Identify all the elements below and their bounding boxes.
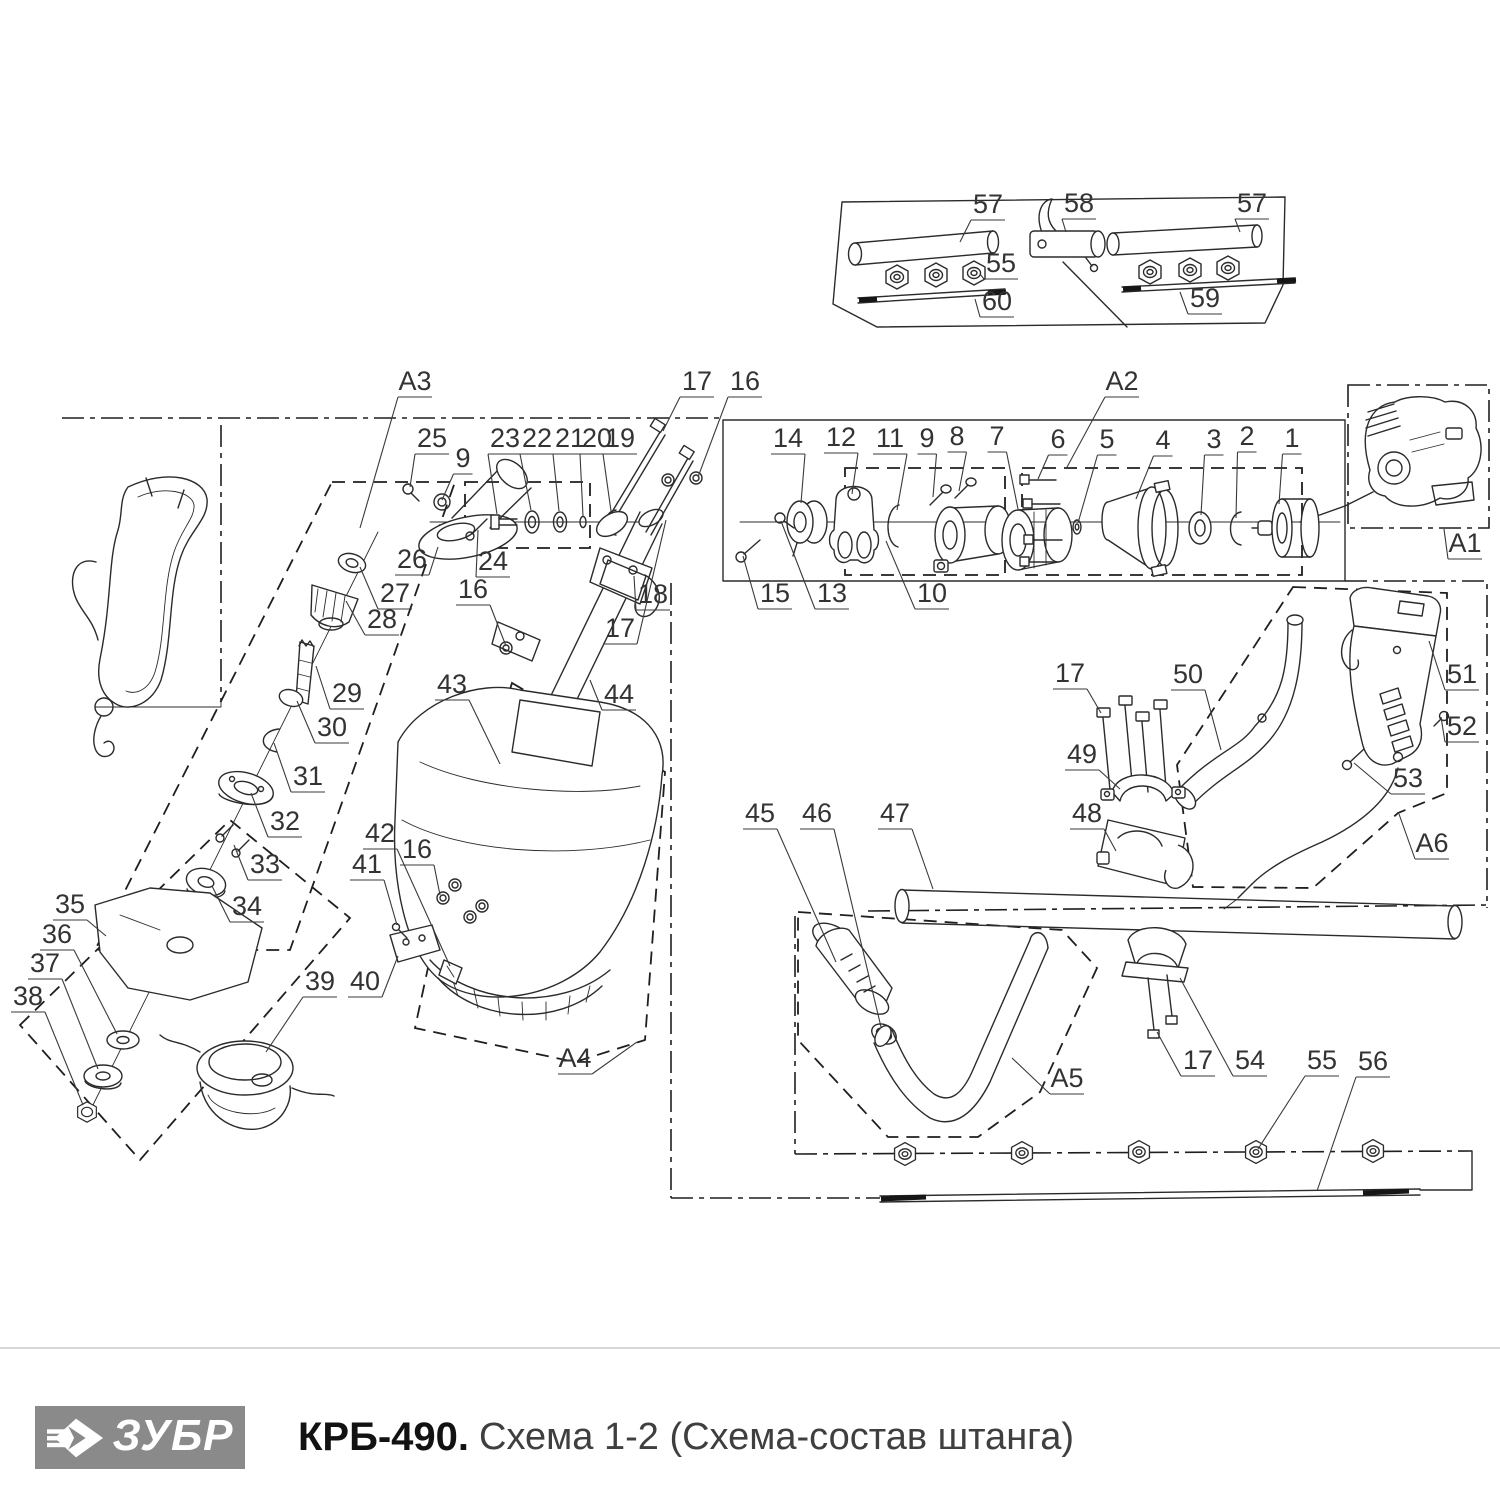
collar-14 (787, 501, 827, 556)
throttle-cable (1252, 768, 1398, 884)
svg-text:55: 55 (1307, 1045, 1337, 1075)
svg-text:38: 38 (13, 981, 43, 1011)
part-label-58: 58 (1062, 188, 1096, 232)
svg-text:30: 30 (317, 712, 347, 742)
flange-cup-32 (215, 766, 277, 810)
svg-text:26: 26 (397, 544, 427, 574)
svg-text:57: 57 (1237, 188, 1267, 218)
svg-text:54: 54 (1235, 1045, 1265, 1075)
svg-text:25: 25 (417, 423, 447, 453)
svg-text:1: 1 (1284, 423, 1299, 453)
svg-text:35: 35 (55, 889, 85, 919)
svg-text:17: 17 (605, 613, 635, 643)
clamp-12 (830, 487, 879, 563)
svg-text:57: 57 (973, 189, 1003, 219)
part-label-22: 22 (520, 423, 554, 510)
svg-text:23: 23 (490, 423, 520, 453)
labels-layer: 575857556059A325923222120192624272816293… (11, 188, 1482, 1191)
lower-bracket-48 (1097, 820, 1193, 888)
lower-clamp-54 (1122, 928, 1188, 1038)
drawing-title: КРБ-490. Схема 1-2 (Схема-состав штанга) (298, 1406, 1074, 1469)
tube-57-left (849, 231, 999, 265)
svg-text:16: 16 (402, 834, 432, 864)
svg-text:29: 29 (332, 678, 362, 708)
clutch-row (736, 475, 1373, 576)
brand-arrow-icon (47, 1416, 105, 1460)
part-label-31: 31 (274, 743, 325, 792)
svg-text:8: 8 (949, 421, 964, 451)
part-label-7: 7 (988, 421, 1019, 509)
guard-43 (395, 687, 664, 1020)
v-handlebar (872, 933, 1048, 1122)
part-label-8: 8 (948, 421, 967, 491)
screw-53 (1343, 749, 1365, 770)
part-label-12: 12 (824, 422, 858, 494)
svg-text:2: 2 (1239, 421, 1254, 451)
svg-text:31: 31 (293, 761, 323, 791)
screw-15 (736, 540, 760, 562)
circlip-31 (263, 729, 279, 752)
svg-text:47: 47 (880, 798, 910, 828)
cup-washer-37 (84, 1065, 122, 1089)
svg-text:50: 50 (1173, 659, 1203, 689)
svg-text:44: 44 (604, 679, 634, 709)
svg-text:A6: A6 (1415, 828, 1448, 858)
part-label-29: 29 (316, 666, 364, 709)
svg-text:36: 36 (42, 919, 72, 949)
part-label-51: 51 (1429, 641, 1479, 690)
part-label-6: 6 (1038, 424, 1068, 479)
part-label-41: 41 (350, 849, 397, 925)
part-label-3: 3 (1201, 424, 1224, 515)
svg-text:46: 46 (802, 798, 832, 828)
part-label-A5: A5 (1012, 1058, 1084, 1094)
svg-text:41: 41 (352, 849, 382, 879)
trigger-handle-a6 (1170, 587, 1448, 909)
svg-text:55: 55 (986, 248, 1016, 278)
part-label-40: 40 (348, 956, 398, 997)
part-label-59: 59 (1180, 283, 1222, 314)
svg-text:18: 18 (638, 579, 668, 609)
page: 575857556059A325923222120192624272816293… (0, 0, 1500, 1500)
svg-text:49: 49 (1067, 739, 1097, 769)
circlip-11 (888, 505, 899, 547)
part-label-1: 1 (1279, 423, 1302, 504)
svg-text:21: 21 (555, 423, 585, 453)
svg-text:43: 43 (437, 669, 467, 699)
part-label-50: 50 (1171, 659, 1221, 750)
part-label-11: 11 (873, 423, 907, 510)
svg-text:17: 17 (1055, 658, 1085, 688)
svg-text:22: 22 (522, 423, 552, 453)
svg-text:A2: A2 (1105, 366, 1138, 396)
bevel-gear-28 (311, 585, 358, 630)
svg-text:9: 9 (919, 423, 934, 453)
svg-text:15: 15 (760, 578, 790, 608)
part-label-A1: A1 (1444, 528, 1482, 559)
svg-text:42: 42 (365, 818, 395, 848)
brand-logo: ЗУБР (35, 1406, 245, 1469)
svg-text:A3: A3 (398, 366, 431, 396)
part-label-9: 9 (918, 423, 937, 497)
screw-8 (955, 478, 976, 498)
part-label-A6: A6 (1399, 814, 1449, 859)
shoulder-strap-a7 (73, 477, 208, 757)
svg-text:6: 6 (1050, 424, 1065, 454)
part-label-14: 14 (771, 423, 805, 503)
part-label-39: 39 (266, 966, 337, 1052)
part-label-17: 17 (1053, 658, 1101, 713)
part-label-52: 52 (1441, 711, 1479, 742)
model-number: КРБ-490. (298, 1415, 469, 1460)
exploded-parts-diagram: 575857556059A325923222120192624272816293… (0, 0, 1500, 1345)
svg-text:9: 9 (455, 443, 470, 473)
bearing-3 (1189, 512, 1211, 544)
part-label-57: 57 (960, 189, 1005, 242)
svg-text:5: 5 (1099, 424, 1114, 454)
svg-text:56: 56 (1358, 1046, 1388, 1076)
left-handle-a5 (808, 917, 1048, 1122)
clutch-housing-4 (1102, 481, 1178, 577)
svg-text:4: 4 (1155, 425, 1170, 455)
svg-text:10: 10 (917, 578, 947, 608)
svg-text:58: 58 (1064, 188, 1094, 218)
part-label-17: 17 (663, 366, 714, 431)
svg-text:51: 51 (1447, 659, 1477, 689)
part-label-2: 2 (1236, 421, 1257, 518)
handle-mount (1097, 696, 1193, 1038)
part-label-33: 33 (234, 845, 282, 880)
svg-text:48: 48 (1072, 798, 1102, 828)
svg-text:14: 14 (773, 423, 803, 453)
footer: ЗУБР КРБ-490. Схема 1-2 (Схема-состав шт… (0, 1347, 1500, 1502)
drum-housing-10 (934, 506, 1011, 572)
svg-text:37: 37 (30, 948, 60, 978)
svg-text:17: 17 (682, 366, 712, 396)
bottom-hardware (880, 1140, 1420, 1202)
svg-text:16: 16 (730, 366, 760, 396)
svg-text:45: 45 (745, 798, 775, 828)
part-label-55: 55 (980, 248, 1018, 279)
svg-text:16: 16 (458, 574, 488, 604)
trigger-handle-51 (1342, 587, 1441, 765)
svg-text:3: 3 (1206, 424, 1221, 454)
part-label-15: 15 (743, 556, 792, 609)
svg-text:40: 40 (350, 966, 380, 996)
part-label-47: 47 (878, 798, 933, 889)
clutch-cup-1 (1252, 499, 1319, 557)
brand-name: ЗУБР (113, 1414, 234, 1458)
part-label-55: 55 (1258, 1045, 1339, 1149)
svg-text:59: 59 (1190, 283, 1220, 313)
svg-text:A5: A5 (1050, 1063, 1083, 1093)
engine-a1 (1365, 397, 1481, 506)
part-label-38: 38 (11, 981, 83, 1105)
svg-text:52: 52 (1447, 711, 1477, 741)
svg-text:11: 11 (876, 423, 904, 453)
part-label-25: 25 (410, 423, 449, 487)
svg-text:7: 7 (989, 421, 1004, 451)
svg-text:A4: A4 (558, 1043, 591, 1073)
trimmer-head-39 (160, 1035, 334, 1129)
upper-clamp-49 (1101, 775, 1185, 801)
svg-text:A1: A1 (1448, 528, 1481, 558)
part-label-49: 49 (1065, 739, 1120, 789)
part-label-17: 17 (1157, 1032, 1215, 1076)
svg-text:24: 24 (478, 546, 508, 576)
bearing-27 (336, 550, 368, 576)
washer-36 (107, 1031, 139, 1049)
drive-rod-56 (880, 1189, 1420, 1202)
svg-text:13: 13 (817, 578, 847, 608)
svg-text:53: 53 (1393, 763, 1423, 793)
svg-text:60: 60 (982, 286, 1012, 316)
nut-38 (78, 1102, 97, 1122)
svg-text:33: 33 (250, 849, 280, 879)
drawing-subtitle: Схема 1-2 (Схема-состав штанга) (479, 1416, 1074, 1459)
right-handlebar-50 (1170, 615, 1303, 813)
svg-text:19: 19 (605, 423, 635, 453)
svg-text:17: 17 (1183, 1045, 1213, 1075)
clutch-drum-7 (1002, 508, 1072, 570)
grip-45 (808, 917, 893, 1019)
svg-text:12: 12 (826, 422, 856, 452)
shaft-tube-47 (895, 890, 1462, 940)
svg-text:28: 28 (367, 604, 397, 634)
svg-text:34: 34 (232, 891, 262, 921)
svg-text:32: 32 (270, 806, 300, 836)
svg-text:39: 39 (305, 966, 335, 996)
